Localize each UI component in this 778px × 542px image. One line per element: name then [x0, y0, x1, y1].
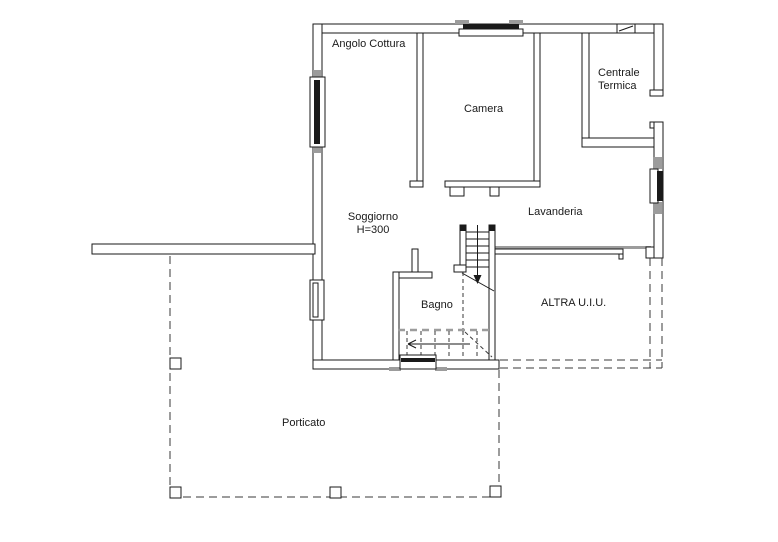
- door-jamb: [490, 187, 499, 196]
- staircase-lower-dashed: [398, 272, 492, 358]
- entry-door-leaf: [401, 358, 435, 362]
- door-sill-tab: [435, 367, 447, 371]
- porch-column: [170, 358, 181, 369]
- window-sill-tab: [653, 157, 662, 169]
- door-sill-tab: [389, 367, 401, 371]
- stair-wall-foot: [454, 265, 466, 272]
- room-label-angolo-cottura: Angolo Cottura: [332, 38, 405, 51]
- top-window-frame: [459, 29, 523, 36]
- altra-uiu-dashed-outline: [500, 258, 662, 368]
- right-window-frame: [650, 169, 658, 203]
- left-lower-window-frame: [310, 280, 324, 320]
- window-sill-tab: [509, 20, 523, 24]
- centrale-termica-left-wall: [582, 33, 589, 138]
- floor-plan-drawing: [0, 0, 778, 542]
- lavanderia-altra-wall: [490, 249, 623, 254]
- stair-stringer-cap: [489, 225, 495, 231]
- garden-wall-stub: [92, 244, 315, 254]
- room-label-porticato: Porticato: [282, 417, 325, 430]
- porch-column: [330, 487, 341, 498]
- porch-column: [490, 486, 501, 497]
- room-label-lavanderia: Lavanderia: [528, 206, 582, 219]
- top-window-sash: [463, 24, 519, 29]
- floor-plan: Angolo Cottura Camera Centrale Termica S…: [0, 0, 778, 542]
- porch-column: [170, 487, 181, 498]
- room-label-bagno: Bagno: [421, 299, 453, 312]
- camera-wall-foot: [410, 181, 423, 187]
- right-window-sash: [657, 171, 663, 201]
- stair-down-arrowhead: [408, 340, 416, 344]
- bagno-left-wall: [393, 272, 399, 360]
- room-label-centrale-termica: Centrale Termica: [598, 67, 656, 93]
- door-jamb: [619, 254, 623, 259]
- door-jamb: [450, 187, 464, 196]
- window-sill-tab: [653, 202, 662, 214]
- room-label-soggiorno-name: Soggiorno: [338, 211, 408, 224]
- camera-left-wall: [417, 33, 423, 182]
- room-label-camera: Camera: [464, 103, 503, 116]
- stair-down-arrowhead: [408, 344, 416, 348]
- porticato-outline: [170, 256, 499, 497]
- window-sill-tab: [455, 20, 469, 24]
- room-label-altra-uiu: ALTRA U.I.U.: [541, 297, 606, 310]
- centrale-termica-bottom-wall: [582, 138, 654, 147]
- room-label-soggiorno: Soggiorno H=300: [338, 211, 408, 237]
- porticato-columns: [170, 358, 501, 498]
- left-upper-window-sash: [314, 80, 320, 144]
- bagno-wall-stub: [412, 249, 418, 272]
- room-label-soggiorno-height: H=300: [338, 224, 408, 237]
- camera-bottom-wall: [445, 181, 540, 187]
- exterior-walls: [92, 24, 663, 369]
- wall-stub: [646, 247, 654, 258]
- window-sill-tab: [313, 70, 321, 77]
- stair-direction-arrowhead: [474, 275, 482, 284]
- camera-right-wall: [534, 33, 540, 181]
- stair-stringer-cap: [460, 225, 466, 231]
- stair-right-wall: [489, 225, 495, 360]
- windows: [310, 20, 663, 320]
